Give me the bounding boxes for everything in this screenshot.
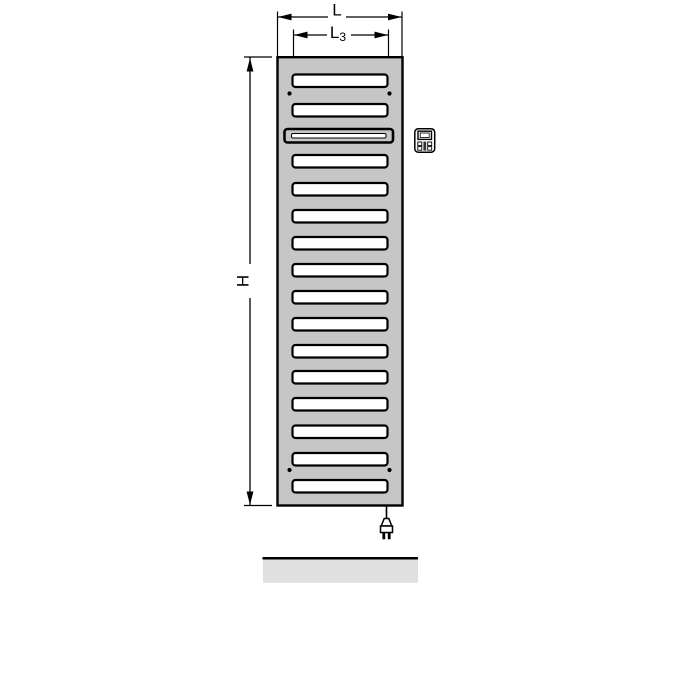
mounting-screw-dot — [387, 91, 391, 95]
plug-neck — [381, 519, 392, 527]
arrow-left-icon — [294, 32, 308, 39]
heating-element-slot — [292, 134, 387, 139]
radiator-slat — [293, 155, 388, 168]
radiator-slat — [293, 75, 388, 88]
slat-width-label-base: L — [330, 23, 339, 42]
radiator-slat — [293, 480, 388, 493]
dimension-slat-width: L3 — [294, 23, 389, 56]
radiator-slat — [293, 210, 388, 223]
mounting-screw-dot — [387, 468, 391, 472]
plug-prong — [382, 533, 385, 540]
control-unit-center-bar — [423, 142, 426, 151]
plug-prong — [388, 533, 391, 540]
slat-width-label: L3 — [330, 23, 346, 44]
radiator-body-group — [278, 57, 403, 505]
radiator-slat — [293, 237, 388, 250]
radiator-slat — [293, 345, 388, 358]
radiator-slat — [293, 318, 388, 331]
plug-body — [381, 526, 393, 533]
control-unit-button — [428, 142, 432, 146]
slat-width-label-subscript: 3 — [339, 30, 346, 44]
control-unit-button — [428, 147, 432, 151]
radiator-slat — [293, 291, 388, 304]
radiator-slat — [293, 453, 388, 466]
control-unit-icon — [415, 129, 435, 152]
control-unit-display-inner — [420, 133, 429, 138]
radiator-slat — [293, 371, 388, 384]
overall-width-label: L — [332, 1, 341, 20]
control-unit-button — [418, 147, 422, 151]
arrow-right-icon — [375, 32, 389, 39]
mounting-screw-dot — [287, 468, 291, 472]
radiator-slat — [293, 104, 388, 117]
dimension-overall-width: L — [278, 1, 403, 57]
dimension-overall-height: H — [234, 57, 273, 506]
radiator-slat — [293, 264, 388, 277]
overall-height-label: H — [234, 275, 253, 287]
floor-base — [263, 558, 419, 583]
radiator-slat — [293, 426, 388, 439]
arrow-up-icon — [247, 58, 254, 72]
radiator-slat — [293, 398, 388, 411]
radiator-slat — [293, 183, 388, 196]
arrow-right-icon — [388, 14, 402, 21]
radiator-diagram-svg: L L3 H — [0, 0, 700, 700]
power-plug-icon — [381, 507, 393, 540]
mounting-screw-dot — [287, 91, 291, 95]
floor-slab — [263, 559, 418, 583]
control-unit-button — [418, 142, 422, 146]
arrow-left-icon — [278, 14, 292, 21]
arrow-down-icon — [247, 492, 254, 506]
technical-drawing-canvas: L L3 H — [0, 0, 700, 700]
